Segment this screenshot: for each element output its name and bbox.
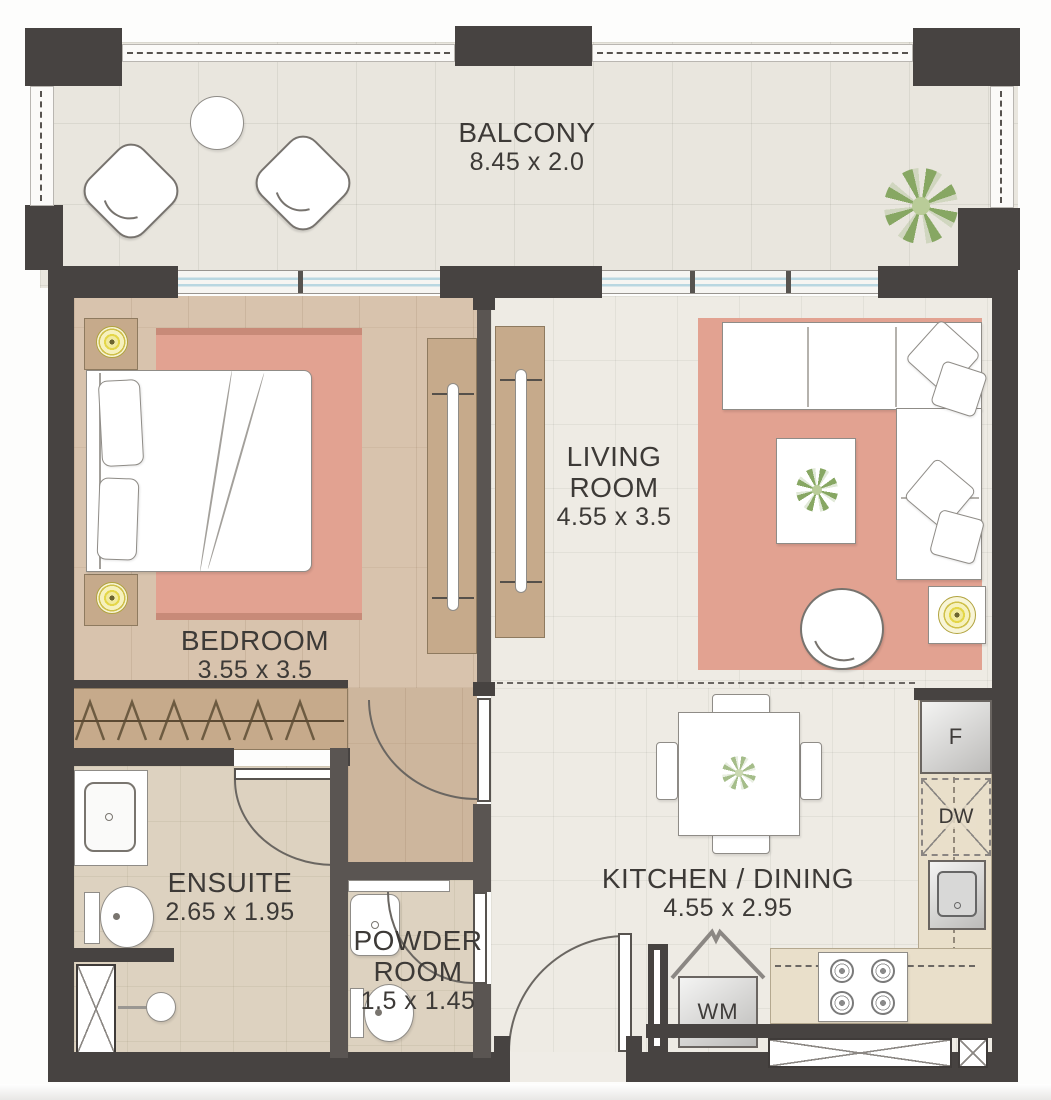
burner-icon bbox=[871, 959, 895, 983]
bedroom-label: BEDROOM 3.55 x 3.5 bbox=[181, 626, 329, 684]
wall-segment bbox=[646, 1024, 1012, 1038]
railing-dash bbox=[597, 52, 908, 54]
balcony-railing bbox=[990, 86, 1014, 208]
wall-segment bbox=[958, 208, 1020, 270]
wall-segment bbox=[25, 205, 63, 270]
room-name: KITCHEN / DINING bbox=[602, 864, 854, 895]
room-dims: 4.55 x 3.5 bbox=[557, 504, 672, 532]
tv-unit-panel bbox=[427, 338, 477, 654]
side-table-lamp-icon bbox=[938, 596, 976, 634]
armchair bbox=[800, 588, 884, 670]
toilet-bowl bbox=[100, 886, 154, 948]
room-name: POWDER bbox=[354, 926, 483, 957]
room-name: ROOM bbox=[557, 473, 672, 504]
door-jamb bbox=[494, 1036, 510, 1082]
flush-dot bbox=[113, 913, 120, 920]
dining-chair bbox=[800, 742, 822, 800]
window-mullion bbox=[690, 271, 695, 293]
ensuite-door-leaf bbox=[234, 768, 334, 780]
entrance-threshold bbox=[508, 1052, 626, 1082]
nightstand-lamp-icon bbox=[96, 582, 128, 614]
dining-chair bbox=[656, 742, 678, 800]
railing-dash bbox=[127, 52, 450, 54]
room-name: LIVING bbox=[557, 442, 672, 473]
burner-icon bbox=[830, 991, 854, 1015]
railing-dash bbox=[40, 91, 42, 201]
zone-boundary-dash bbox=[497, 682, 915, 684]
wall-segment bbox=[992, 266, 1018, 1082]
burner-icon bbox=[830, 959, 854, 983]
room-dims: 1.5 x 1.45 bbox=[354, 988, 483, 1016]
counter-cap-wall bbox=[914, 688, 992, 700]
balcony-railing bbox=[122, 44, 455, 62]
room-name: ENSUITE bbox=[165, 868, 294, 899]
room-dims: 8.45 x 2.0 bbox=[458, 149, 595, 177]
kitchen-dining-label: KITCHEN / DINING 4.55 x 2.95 bbox=[602, 864, 854, 922]
room-dims: 4.55 x 2.95 bbox=[602, 895, 854, 923]
coffee-table-plant-icon bbox=[796, 468, 838, 512]
shower-head bbox=[146, 992, 176, 1022]
tv-unit-panel bbox=[495, 326, 545, 638]
dining-table-plant-icon bbox=[722, 756, 756, 790]
burner-icon bbox=[871, 991, 895, 1015]
wall-segment bbox=[48, 1052, 508, 1082]
powder-room-label: POWDER ROOM 1.5 x 1.45 bbox=[354, 926, 483, 1015]
seat-line bbox=[807, 327, 809, 407]
panel-handle bbox=[515, 369, 527, 593]
page-bottom-fade bbox=[0, 1084, 1051, 1100]
wall-segment bbox=[48, 266, 74, 1082]
window-mullion bbox=[786, 271, 791, 293]
sink-basin bbox=[937, 871, 977, 917]
window-mullion bbox=[298, 271, 303, 293]
room-name: ROOM bbox=[354, 957, 483, 988]
wall-segment bbox=[455, 26, 592, 66]
divider-wall bbox=[477, 298, 491, 694]
door-jamb bbox=[626, 1036, 642, 1082]
water-supply-icon bbox=[666, 924, 770, 980]
pillow bbox=[97, 477, 140, 560]
wall-segment bbox=[48, 748, 234, 766]
fridge: F bbox=[920, 700, 992, 774]
toilet-tank bbox=[84, 892, 100, 944]
wall-segment bbox=[25, 28, 122, 86]
stove bbox=[818, 952, 908, 1022]
builtin-cabinet bbox=[768, 1038, 952, 1068]
balcony-plant-icon bbox=[884, 168, 958, 244]
powder-ledge bbox=[348, 880, 450, 892]
railing-dash bbox=[1000, 91, 1002, 203]
sink-drain bbox=[954, 902, 961, 909]
room-name: BALCONY bbox=[458, 118, 595, 149]
wall-cap bbox=[473, 682, 495, 696]
panel-handle bbox=[447, 383, 459, 611]
wall-segment bbox=[348, 862, 475, 880]
window-glazing bbox=[178, 270, 440, 294]
vanity bbox=[74, 770, 148, 866]
floor-plan: F DW WM bbox=[0, 0, 1051, 1100]
service-shaft bbox=[76, 964, 116, 1054]
wall-segment bbox=[440, 266, 602, 298]
ensuite-label: ENSUITE 2.65 x 1.95 bbox=[165, 868, 294, 926]
living-room-label: LIVING ROOM 4.55 x 3.5 bbox=[557, 442, 672, 531]
balcony-label: BALCONY 8.45 x 2.0 bbox=[458, 118, 595, 176]
wall-segment bbox=[473, 804, 491, 892]
balcony-railing bbox=[592, 44, 913, 62]
kitchen-sink bbox=[928, 860, 986, 930]
pillow bbox=[98, 379, 144, 467]
balcony-table bbox=[190, 96, 244, 150]
seat-line bbox=[895, 327, 897, 407]
nightstand-lamp-icon bbox=[96, 326, 128, 358]
bedroom-door-leaf bbox=[477, 698, 491, 802]
fridge-label: F bbox=[949, 724, 963, 750]
builtin-cabinet bbox=[958, 1038, 988, 1068]
balcony-railing bbox=[30, 86, 54, 206]
room-dims: 3.55 x 3.5 bbox=[181, 657, 329, 685]
wall-segment bbox=[330, 748, 348, 1058]
wall-segment bbox=[913, 28, 1020, 86]
washer-label: WM bbox=[697, 999, 738, 1025]
dishwasher: DW bbox=[921, 778, 991, 856]
window-glazing bbox=[602, 270, 878, 294]
room-name: BEDROOM bbox=[181, 626, 329, 657]
faucet-dot bbox=[105, 813, 113, 821]
closet bbox=[62, 688, 348, 750]
entrance-door-leaf bbox=[618, 933, 632, 1052]
shower-wall-stub bbox=[70, 948, 174, 962]
hangers-icon bbox=[66, 692, 346, 748]
dishwasher-label: DW bbox=[937, 805, 976, 829]
room-dims: 2.65 x 1.95 bbox=[165, 899, 294, 927]
wall-cap bbox=[473, 298, 495, 310]
